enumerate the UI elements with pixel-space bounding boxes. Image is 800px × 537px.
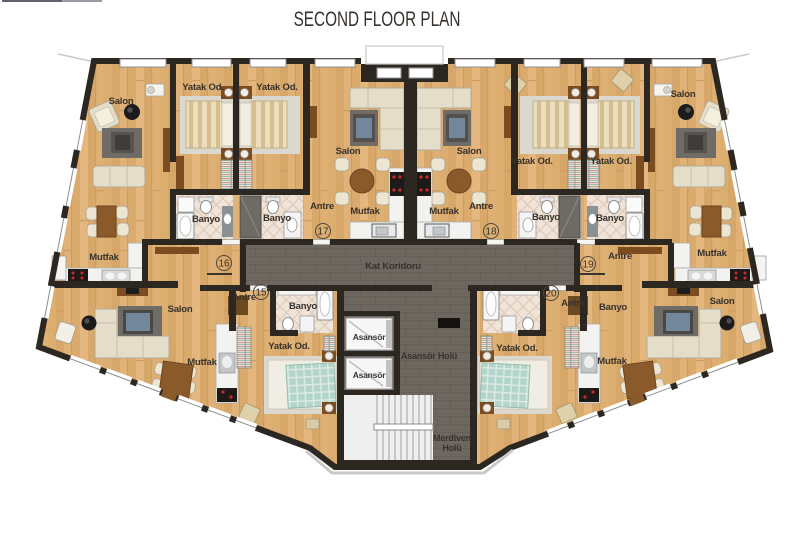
svg-text:16: 16 xyxy=(218,259,230,270)
svg-text:Mutfak: Mutfak xyxy=(89,252,119,263)
svg-text:18: 18 xyxy=(485,227,497,238)
svg-text:Banyo: Banyo xyxy=(596,213,624,224)
svg-text:Yatak Od.: Yatak Od. xyxy=(268,341,310,352)
svg-text:Banyo: Banyo xyxy=(599,302,627,313)
svg-text:19: 19 xyxy=(582,260,594,271)
svg-text:Banyo: Banyo xyxy=(263,213,291,224)
svg-text:Asansör Holü: Asansör Holü xyxy=(401,351,457,361)
svg-text:Mutfak: Mutfak xyxy=(350,206,380,217)
svg-text:Mutfak: Mutfak xyxy=(429,206,459,217)
svg-text:Antre: Antre xyxy=(608,251,632,262)
svg-text:Asansör: Asansör xyxy=(353,370,387,380)
svg-text:20: 20 xyxy=(545,289,557,300)
svg-text:Yatak Od.: Yatak Od. xyxy=(256,82,298,93)
svg-text:Mutfak: Mutfak xyxy=(597,356,627,367)
svg-text:Antre: Antre xyxy=(310,201,334,212)
svg-text:Yatak Od.: Yatak Od. xyxy=(590,156,632,167)
svg-text:15: 15 xyxy=(255,288,267,299)
svg-text:Salon: Salon xyxy=(710,296,735,307)
svg-text:Antre: Antre xyxy=(232,292,256,303)
svg-text:Banyo: Banyo xyxy=(192,214,220,225)
svg-text:Merdiven: Merdiven xyxy=(433,433,471,443)
svg-text:Kat Koridoru: Kat Koridoru xyxy=(365,261,421,272)
svg-text:Salon: Salon xyxy=(671,89,696,100)
svg-text:Asansör: Asansör xyxy=(353,332,387,342)
svg-text:Holü: Holü xyxy=(442,443,461,453)
svg-text:Mutfak: Mutfak xyxy=(697,248,727,259)
svg-text:Antre: Antre xyxy=(561,298,585,309)
svg-text:Banyo: Banyo xyxy=(532,212,560,223)
svg-text:17: 17 xyxy=(317,227,329,238)
svg-text:Yatak Od.: Yatak Od. xyxy=(182,82,224,93)
svg-text:Mutfak: Mutfak xyxy=(187,357,217,368)
svg-text:Salon: Salon xyxy=(457,146,482,157)
svg-text:Salon: Salon xyxy=(336,146,361,157)
svg-text:Banyo: Banyo xyxy=(289,301,317,312)
svg-text:Yatak Od.: Yatak Od. xyxy=(511,156,553,167)
svg-text:Salon: Salon xyxy=(168,304,193,315)
svg-text:Salon: Salon xyxy=(109,96,134,107)
svg-text:Yatak Od.: Yatak Od. xyxy=(496,343,538,354)
svg-text:Antre: Antre xyxy=(469,201,493,212)
svg-text:SECOND FLOOR PLAN: SECOND FLOOR PLAN xyxy=(294,7,461,31)
